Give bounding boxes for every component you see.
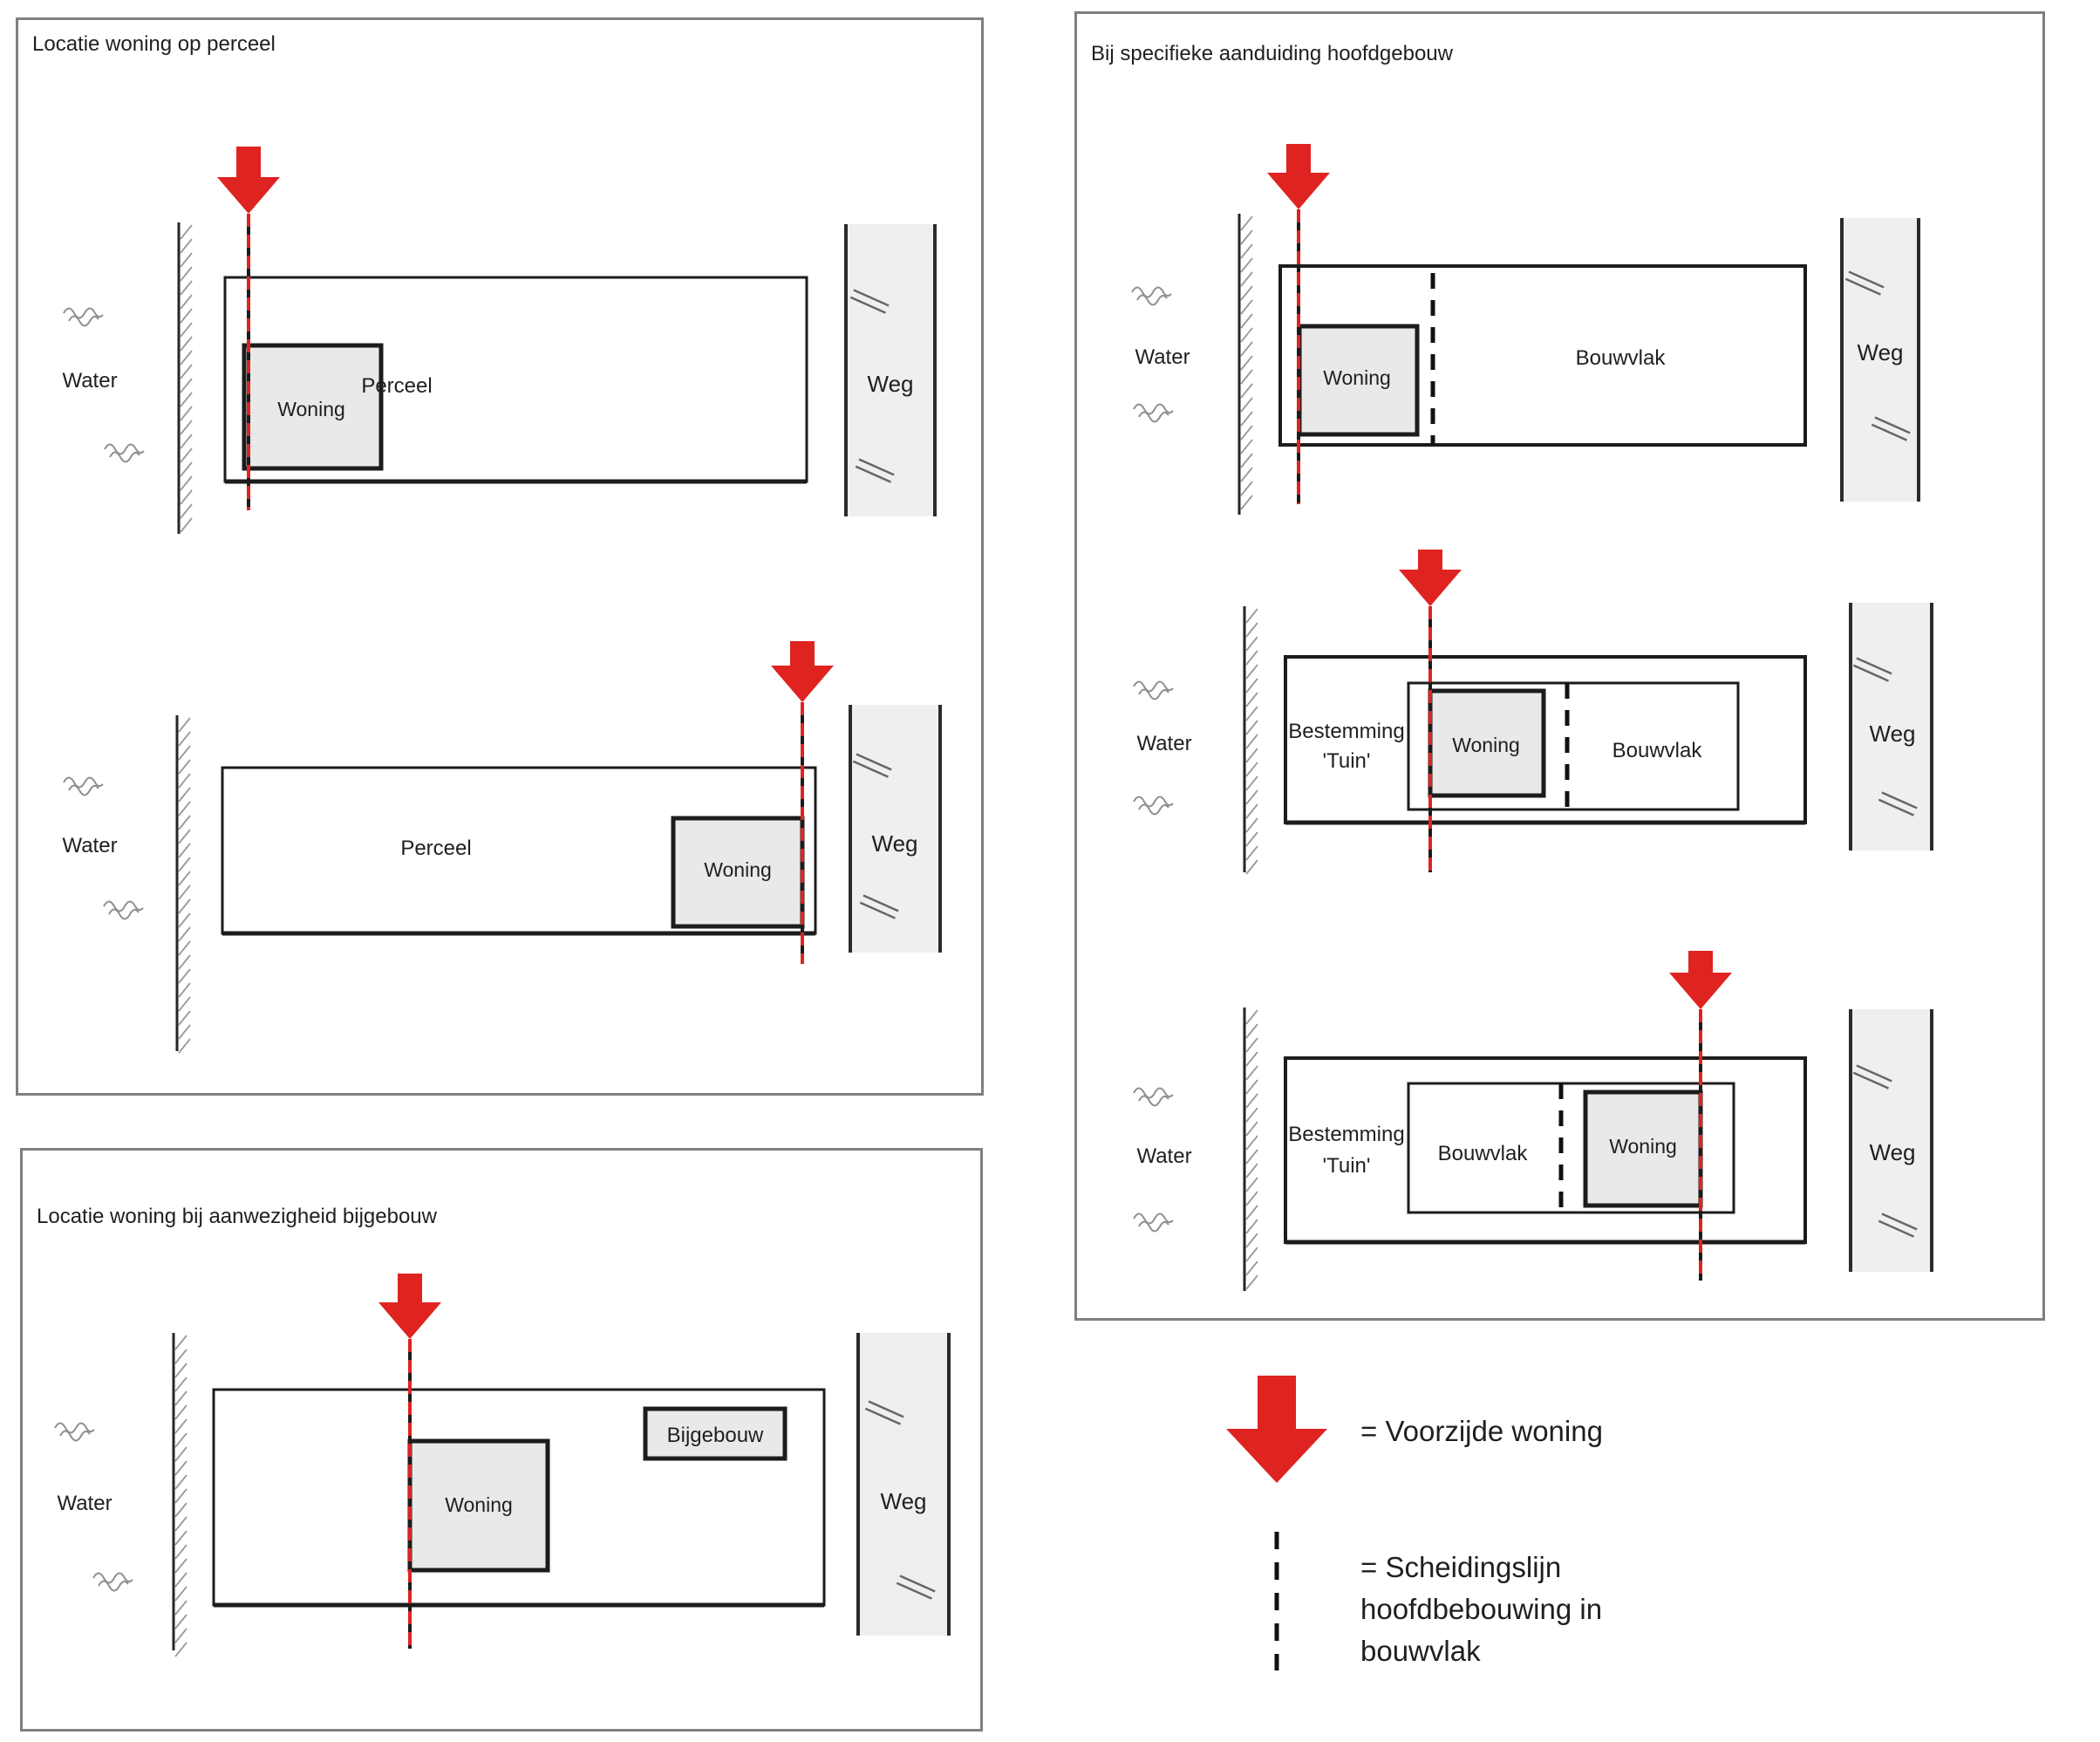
hatch-tick (1246, 1261, 1258, 1275)
hatch-tick (175, 1531, 187, 1545)
hatch-tick (179, 830, 190, 844)
hatch-tick (1241, 482, 1252, 495)
hatch-tick (1241, 314, 1252, 328)
hatch-tick (1241, 398, 1252, 412)
hatch-tick (1246, 1178, 1258, 1192)
hatch-tick (1241, 440, 1252, 454)
hatch-tick (1241, 384, 1252, 398)
hatch-tick (179, 1025, 190, 1039)
woning-label: Woning (1609, 1135, 1677, 1158)
hatch-tick (175, 1336, 187, 1349)
water-wave-icon (105, 445, 144, 462)
hatch-tick (175, 1545, 187, 1559)
water-label: Water (1136, 1144, 1191, 1168)
wave-line (1139, 805, 1169, 815)
bestemming1-label: Bestemming (1288, 720, 1404, 743)
weg-label: Weg (868, 371, 914, 397)
water-wave-icon (64, 778, 103, 796)
hatch-tick (181, 351, 192, 365)
wave-line (69, 786, 99, 796)
hatch-tick (1246, 1275, 1258, 1289)
hatch-tick (179, 760, 190, 774)
bouwvlak-label: Bouwvlak (1438, 1142, 1529, 1165)
hatch-tick (175, 1377, 187, 1391)
hatch-tick (1246, 1122, 1258, 1136)
hatch-tick (1246, 1052, 1258, 1066)
hatch-tick (1241, 216, 1252, 230)
hatch-tick (1246, 1066, 1258, 1080)
hatch-tick (1241, 370, 1252, 384)
water-wave-icon (104, 902, 143, 919)
perceel-box (1285, 1058, 1805, 1242)
hatch-tick (179, 844, 190, 857)
weg-label: Weg (872, 830, 918, 857)
page: Locatie woning op perceel Locatie woning… (0, 0, 2100, 1742)
hatch-tick (1241, 272, 1252, 286)
hatch-tick (179, 927, 190, 941)
legend-scheidingslijn-label-2: bouwvlak (1360, 1635, 1481, 1667)
hatch-tick (175, 1461, 187, 1475)
water-edge-hatching (174, 1333, 187, 1657)
weg-label: Weg (1870, 721, 1916, 747)
hatch-tick (181, 337, 192, 351)
water-wave-icon (1132, 288, 1171, 305)
voorzijde-arrow-icon (1399, 550, 1462, 606)
hatch-tick (1246, 1233, 1258, 1247)
hatch-tick (1241, 300, 1252, 314)
wave-line (1139, 1222, 1169, 1232)
hatch-tick (181, 239, 192, 253)
legend-voorzijde-label: = Voorzijde woning (1360, 1415, 1603, 1447)
hatch-tick (175, 1391, 187, 1405)
hatch-tick (1246, 651, 1258, 665)
woning-label: Woning (277, 398, 345, 420)
hatch-tick (1241, 328, 1252, 342)
hatch-tick (1246, 721, 1258, 734)
hatch-tick (179, 955, 190, 969)
hatch-tick (1246, 762, 1258, 776)
woning-label: Woning (445, 1493, 513, 1516)
hatch-tick (179, 732, 190, 746)
hatch-tick (1246, 665, 1258, 679)
hatch-tick (1241, 468, 1252, 482)
hatch-tick (179, 969, 190, 983)
wave-line (60, 1431, 90, 1441)
hatch-tick (179, 788, 190, 802)
wave-line (110, 453, 140, 462)
voorzijde-arrow-icon (1267, 144, 1330, 209)
hatch-tick (1246, 1192, 1258, 1206)
water-label: Water (57, 1492, 112, 1515)
hatch-tick (1246, 637, 1258, 651)
water-wave-icon (93, 1574, 133, 1591)
weg-label: Weg (1858, 339, 1904, 365)
hatch-tick (175, 1643, 187, 1657)
hatch-tick (1246, 707, 1258, 721)
water-edge-hatching (1239, 214, 1252, 515)
hatch-tick (179, 871, 190, 885)
water-wave-icon (1134, 1214, 1173, 1232)
hatch-tick (1241, 454, 1252, 468)
legend-voorzijde-arrow-icon (1226, 1376, 1327, 1483)
voorzijde-arrow-icon (217, 147, 280, 214)
wave-line (69, 317, 99, 326)
hatch-tick (1246, 804, 1258, 818)
water-wave-icon (1134, 1089, 1173, 1106)
legend-scheidingslijn-label-0: = Scheidingslijn (1360, 1551, 1561, 1583)
bouwvlak-label: Bouwvlak (1612, 739, 1703, 762)
hatch-tick (179, 913, 190, 927)
hatch-tick (1246, 846, 1258, 860)
hatch-tick (179, 746, 190, 760)
hatch-tick (179, 774, 190, 788)
hatch-tick (175, 1587, 187, 1601)
hatch-tick (1246, 1094, 1258, 1108)
hatch-tick (179, 1011, 190, 1025)
hatch-tick (175, 1363, 187, 1377)
hatch-tick (179, 857, 190, 871)
hatch-tick (181, 393, 192, 406)
perceel-label: Perceel (400, 837, 471, 860)
wave-line (1139, 413, 1169, 422)
hatch-tick (1246, 1024, 1258, 1038)
diagram-canvas: WegWaterWoningPerceelWegWaterWoningPerce… (0, 0, 2100, 1742)
hatch-tick (1241, 426, 1252, 440)
hatch-tick (175, 1475, 187, 1489)
hatch-tick (1246, 776, 1258, 790)
hatch-tick (179, 899, 190, 913)
road-strip (850, 705, 940, 953)
hatch-tick (181, 323, 192, 337)
hatch-tick (1246, 734, 1258, 748)
hatch-tick (1246, 1219, 1258, 1233)
water-label: Water (62, 369, 117, 393)
perceel-label: Perceel (361, 374, 432, 398)
hatch-tick (1246, 1247, 1258, 1261)
voorzijde-arrow-icon (771, 641, 834, 702)
wave-line (1137, 296, 1167, 305)
hatch-tick (1246, 1010, 1258, 1024)
hatch-tick (175, 1615, 187, 1629)
hatch-tick (1246, 1080, 1258, 1094)
hatch-tick (181, 225, 192, 239)
hatch-tick (181, 281, 192, 295)
hatch-tick (1246, 1206, 1258, 1219)
water-wave-icon (55, 1424, 94, 1441)
woning-label: Woning (1452, 734, 1520, 756)
water-edge-hatching (1244, 1008, 1258, 1291)
hatch-tick (1246, 1150, 1258, 1164)
wave-line (1139, 1096, 1169, 1106)
hatch-tick (181, 295, 192, 309)
hatch-tick (181, 309, 192, 323)
hatch-tick (181, 518, 192, 532)
water-label: Water (62, 834, 117, 857)
hatch-tick (175, 1517, 187, 1531)
woning-label: Woning (1323, 366, 1391, 389)
hatch-tick (175, 1349, 187, 1363)
voorzijde-arrow-icon (1669, 951, 1732, 1009)
hatch-tick (181, 420, 192, 434)
weg-label: Weg (1870, 1139, 1916, 1165)
bestemming2-label: 'Tuin' (1323, 749, 1371, 773)
wave-line (99, 1581, 128, 1591)
woning-label: Woning (704, 858, 772, 881)
wave-line (109, 910, 139, 919)
water-edge-hatching (1244, 606, 1258, 874)
road-strip (858, 1333, 949, 1636)
water-edge-hatching (177, 715, 190, 1053)
hatch-tick (1241, 356, 1252, 370)
hatch-tick (181, 462, 192, 476)
water-wave-icon (64, 309, 103, 326)
hatch-tick (1246, 609, 1258, 623)
hatch-tick (1246, 1038, 1258, 1052)
wave-line (1139, 690, 1169, 700)
hatch-tick (175, 1447, 187, 1461)
bouwvlak-label: Bouwvlak (1576, 346, 1667, 370)
hatch-tick (181, 490, 192, 504)
hatch-tick (1246, 748, 1258, 762)
legend-scheidingslijn-label-1: hoofdbebouwing in (1360, 1593, 1602, 1625)
hatch-tick (1246, 1164, 1258, 1178)
voorzijde-arrow-icon (378, 1274, 441, 1339)
hatch-tick (1246, 679, 1258, 693)
hatch-tick (1246, 860, 1258, 874)
hatch-tick (179, 718, 190, 732)
hatch-tick (181, 476, 192, 490)
bestemming2-label: 'Tuin' (1323, 1154, 1371, 1178)
water-wave-icon (1134, 797, 1173, 815)
hatch-tick (1241, 258, 1252, 272)
hatch-tick (181, 434, 192, 448)
hatch-tick (175, 1433, 187, 1447)
hatch-tick (1246, 623, 1258, 637)
hatch-tick (175, 1629, 187, 1643)
hatch-tick (179, 983, 190, 997)
hatch-tick (179, 816, 190, 830)
hatch-tick (179, 802, 190, 816)
hatch-tick (179, 997, 190, 1011)
hatch-tick (1241, 286, 1252, 300)
hatch-tick (175, 1573, 187, 1587)
water-label: Water (1136, 732, 1191, 755)
hatch-tick (181, 379, 192, 393)
hatch-tick (1241, 342, 1252, 356)
weg-label: Weg (881, 1488, 927, 1514)
water-label: Water (1135, 345, 1190, 369)
hatch-tick (181, 267, 192, 281)
hatch-tick (179, 1039, 190, 1053)
hatch-tick (1246, 1136, 1258, 1150)
water-edge-hatching (179, 222, 192, 534)
hatch-tick (181, 406, 192, 420)
water-wave-icon (1134, 405, 1173, 422)
hatch-tick (1246, 790, 1258, 804)
bestemming1-label: Bestemming (1288, 1123, 1404, 1146)
bijgebouw-label: Bijgebouw (667, 1424, 764, 1447)
hatch-tick (181, 365, 192, 379)
hatch-tick (181, 504, 192, 518)
hatch-tick (1246, 818, 1258, 832)
hatch-tick (1241, 495, 1252, 509)
hatch-tick (1241, 412, 1252, 426)
water-wave-icon (1134, 682, 1173, 700)
hatch-tick (175, 1601, 187, 1615)
hatch-tick (175, 1419, 187, 1433)
hatch-tick (1241, 244, 1252, 258)
hatch-tick (181, 448, 192, 462)
hatch-tick (179, 941, 190, 955)
hatch-tick (1246, 1108, 1258, 1122)
hatch-tick (1241, 230, 1252, 244)
hatch-tick (175, 1559, 187, 1573)
hatch-tick (181, 253, 192, 267)
hatch-tick (175, 1503, 187, 1517)
hatch-tick (175, 1489, 187, 1503)
hatch-tick (175, 1405, 187, 1419)
hatch-tick (1246, 693, 1258, 707)
hatch-tick (179, 885, 190, 899)
hatch-tick (1246, 832, 1258, 846)
